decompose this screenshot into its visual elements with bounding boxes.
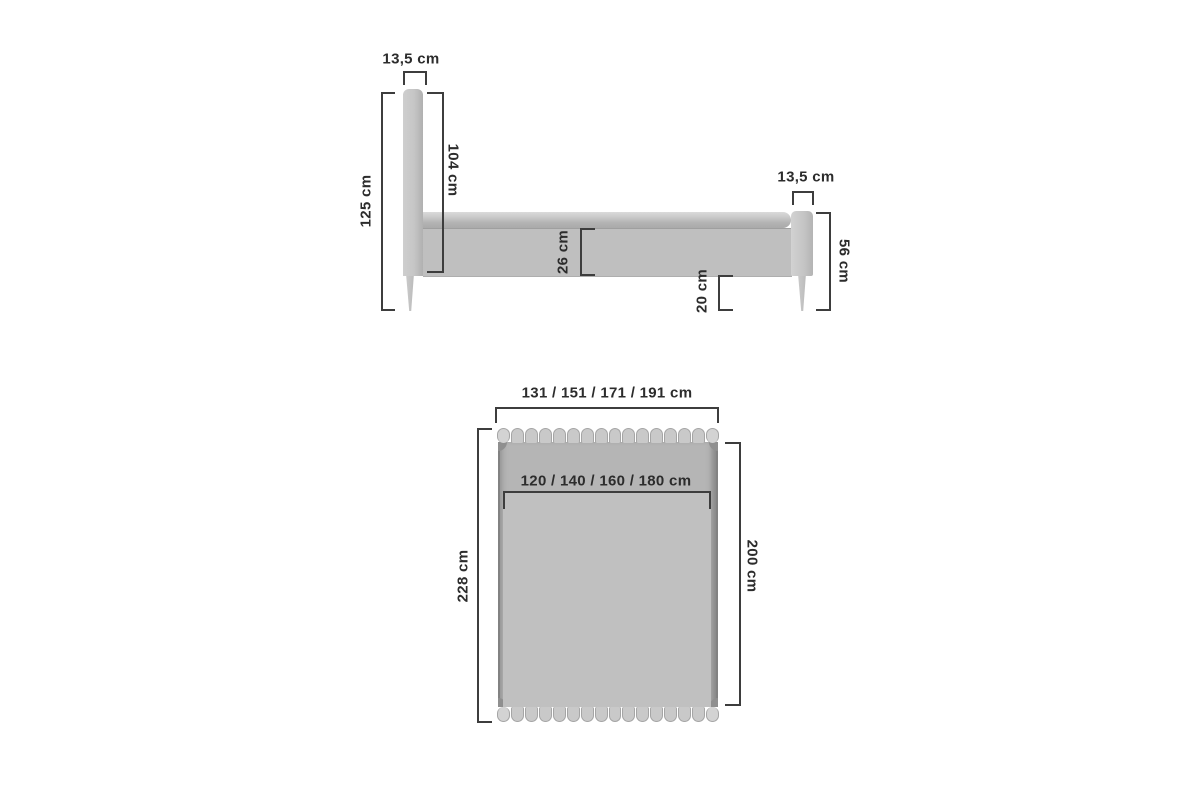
bed-dimension-diagram: 13,5 cm 125 cm 104 cm 26 cm 20 cm 13,5 xyxy=(0,0,1200,800)
headboard-cushion-segment xyxy=(692,428,705,443)
outer-length-dim-line xyxy=(477,428,479,723)
frame-height-dim-line xyxy=(580,228,582,276)
headboard-cushion-row xyxy=(497,428,719,443)
headboard-width-dim-line xyxy=(403,71,427,73)
headboard-cushion-segment xyxy=(622,428,635,443)
footboard-cushion-segment xyxy=(581,707,594,722)
headboard-cushion-segment xyxy=(664,428,677,443)
footboard-cushion-segment xyxy=(636,707,649,722)
footboard-cushion-segment xyxy=(692,707,705,722)
headboard-cushion-segment xyxy=(525,428,538,443)
outer-width-label: 131 / 151 / 171 / 191 cm xyxy=(522,386,693,401)
footboard-cushion-segment xyxy=(525,707,538,722)
headboard-width-dim-tick-left xyxy=(403,71,405,85)
headboard-cushion-segment xyxy=(581,428,594,443)
side-frame-rail xyxy=(423,228,792,277)
footboard-panel xyxy=(791,211,813,276)
headboard-front-height-label: 104 cm xyxy=(446,144,461,197)
frame-height-dim-tick-top xyxy=(580,228,595,230)
mattress-length-label: 200 cm xyxy=(745,540,760,593)
footboard-cushion-segment xyxy=(678,707,691,722)
frame-height-label: 26 cm xyxy=(556,230,571,274)
footboard-cushion-segment xyxy=(622,707,635,722)
footboard-height-dim-line xyxy=(829,212,831,311)
mattress-length-dim-line xyxy=(739,442,741,706)
headboard-cushion-segment xyxy=(595,428,608,443)
footboard-width-dim-tick-left xyxy=(792,191,794,205)
clearance-dim-line xyxy=(718,275,720,311)
footboard-width-dim-line xyxy=(792,191,814,193)
headboard-front-dim-tick-bottom xyxy=(427,271,444,273)
mattress-side xyxy=(423,212,791,228)
headboard-width-label: 13,5 cm xyxy=(382,52,439,67)
outer-length-dim-tick-bottom xyxy=(477,721,492,723)
footboard-width-label: 13,5 cm xyxy=(777,170,834,185)
footboard-cushion-segment xyxy=(497,707,510,722)
headboard-cushion-segment xyxy=(511,428,524,443)
footboard-cushion-segment xyxy=(539,707,552,722)
footboard-cushion-segment xyxy=(609,707,622,722)
headboard-cushion-segment xyxy=(650,428,663,443)
mattress-width-label: 120 / 140 / 160 / 180 cm xyxy=(521,474,692,489)
headboard-cushion-segment xyxy=(539,428,552,443)
total-height-dim-line xyxy=(381,92,383,311)
mattress-length-dim-tick-bottom xyxy=(725,704,741,706)
mattress-width-dim-tick-right xyxy=(709,491,711,509)
footboard-leg xyxy=(797,276,807,311)
footboard-cushion-segment xyxy=(567,707,580,722)
footboard-height-dim-tick-bottom xyxy=(816,309,831,311)
total-height-dim-tick-top xyxy=(381,92,395,94)
outer-length-dim-tick-top xyxy=(477,428,492,430)
footboard-cushion-segment xyxy=(553,707,566,722)
headboard-panel xyxy=(403,89,423,276)
outer-length-label: 228 cm xyxy=(456,550,471,603)
clearance-dim-tick-top xyxy=(718,275,733,277)
footboard-cushion-segment xyxy=(706,707,719,722)
headboard-cushion-segment xyxy=(609,428,622,443)
footboard-height-label: 56 cm xyxy=(837,239,852,283)
headboard-cushion-segment xyxy=(678,428,691,443)
headboard-width-dim-tick-right xyxy=(425,71,427,85)
footboard-cushion-row xyxy=(497,707,719,722)
mattress-width-dim-tick-left xyxy=(503,491,505,509)
footboard-height-dim-tick-top xyxy=(816,212,831,214)
footboard-cushion-segment xyxy=(664,707,677,722)
outer-width-dim-line xyxy=(495,407,719,409)
clearance-dim-tick-bottom xyxy=(718,309,733,311)
headboard-cushion-segment xyxy=(497,428,510,443)
mattress-length-dim-tick-top xyxy=(725,442,741,444)
outer-width-dim-tick-right xyxy=(717,407,719,423)
headboard-height-label: 125 cm xyxy=(359,175,374,228)
headboard-leg xyxy=(405,276,415,311)
headboard-cushion-segment xyxy=(636,428,649,443)
clearance-label: 20 cm xyxy=(695,269,710,313)
headboard-cushion-segment xyxy=(553,428,566,443)
mattress-width-dim-line xyxy=(503,491,711,493)
total-height-dim-tick-bottom xyxy=(381,309,395,311)
headboard-front-dim-tick-top xyxy=(427,92,444,94)
footboard-cushion-segment xyxy=(511,707,524,722)
footboard-cushion-segment xyxy=(595,707,608,722)
mattress-area-top xyxy=(503,493,711,707)
outer-width-dim-tick-left xyxy=(495,407,497,423)
footboard-width-dim-tick-right xyxy=(812,191,814,205)
headboard-cushion-segment xyxy=(567,428,580,443)
footboard-cushion-segment xyxy=(650,707,663,722)
headboard-cushion-segment xyxy=(706,428,719,443)
frame-height-dim-tick-bottom xyxy=(580,274,595,276)
